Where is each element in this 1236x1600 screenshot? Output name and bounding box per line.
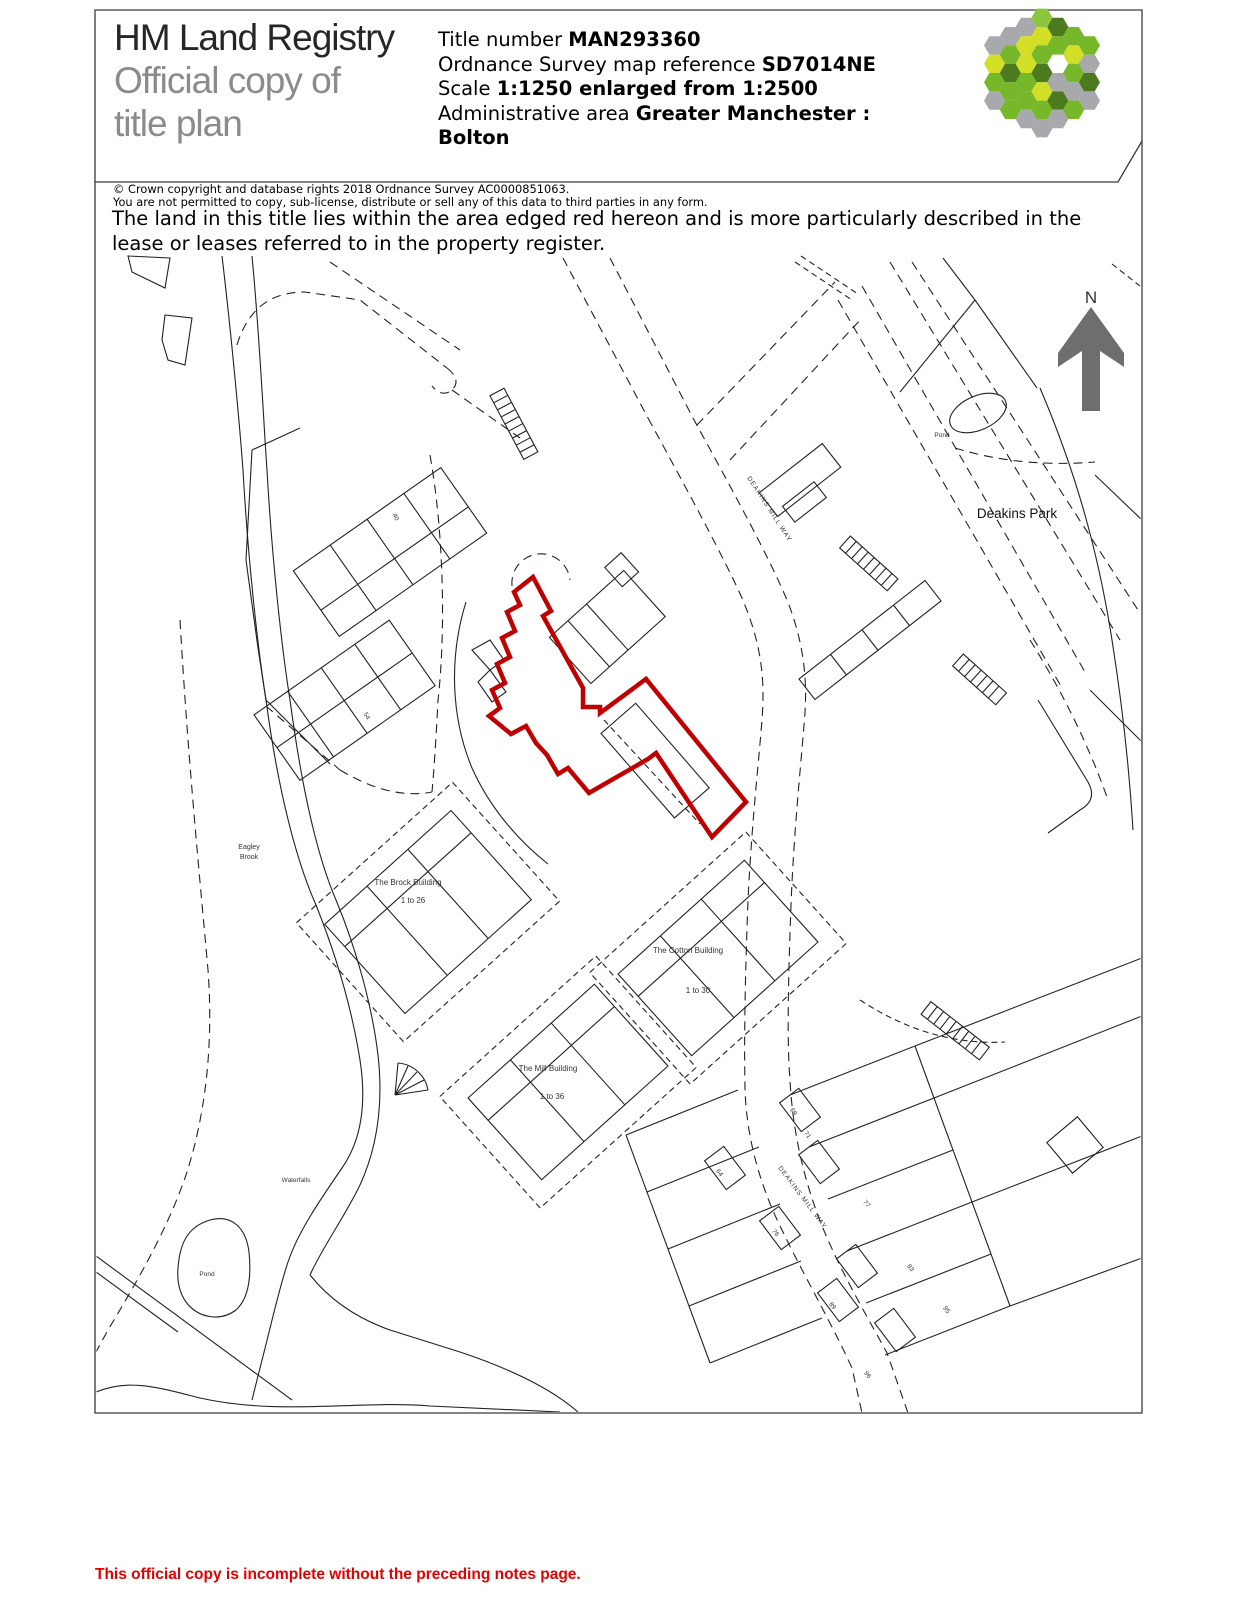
admin-area-row2: Bolton xyxy=(438,126,876,151)
os-reference-row: Ordnance Survey map reference SD7014NE xyxy=(438,53,876,78)
hm-land-registry-logo-icon xyxy=(984,9,1100,138)
scale-row: Scale 1:1250 enlarged from 1:2500 xyxy=(438,77,876,102)
eagley-brook-label-2: Brook xyxy=(240,854,259,861)
title-number-value: MAN293360 xyxy=(568,28,700,51)
logo-title: HM Land Registry xyxy=(114,16,394,59)
admin-area-value2: Bolton xyxy=(438,126,510,149)
brock-building-units: 1 to 26 xyxy=(401,896,426,905)
terrace-40 xyxy=(293,468,486,637)
top-roads xyxy=(237,256,1140,460)
logo-subtitle-line2: title plan xyxy=(114,102,394,145)
spiral-steps xyxy=(395,1063,428,1095)
road-name-label-bottom: DEAKINS MILL WAY xyxy=(776,1165,828,1230)
mill-building-name: The Mill Building xyxy=(519,1064,578,1073)
plot-number: 96 xyxy=(862,1370,872,1380)
pond-top-outline xyxy=(944,385,1013,440)
mill-building xyxy=(440,956,696,1208)
scale-value: 1:1250 enlarged from 1:2500 xyxy=(497,77,818,100)
plot-number: 77 xyxy=(861,1199,871,1209)
brook-lines xyxy=(96,256,578,1412)
brock-building xyxy=(296,782,559,1041)
os-reference-label: Ordnance Survey map reference xyxy=(438,53,762,76)
plot-number: 89 xyxy=(827,1301,837,1311)
road-side-terrace xyxy=(759,444,941,700)
terrace-enclosure xyxy=(246,428,443,794)
north-arrow-icon: N xyxy=(1058,288,1124,411)
title-details: Title number MAN293360 Ordnance Survey m… xyxy=(438,28,876,151)
eagley-brook-label-1: Eagley xyxy=(238,844,260,851)
incomplete-copy-warning: This official copy is incomplete without… xyxy=(95,1566,581,1584)
cotton-building-name: The Cotton Building xyxy=(653,946,723,955)
brock-building-name: The Brock Building xyxy=(374,878,441,887)
plot-number: 71 xyxy=(802,1130,812,1140)
admin-area-row: Administrative area Greater Manchester : xyxy=(438,102,876,127)
scale-label: Scale xyxy=(438,77,497,100)
pond-bottom-outline xyxy=(178,1219,250,1317)
deakins-park-label: Deakins Park xyxy=(977,506,1058,521)
lease-statement: The land in this title lies within the a… xyxy=(112,206,1124,256)
north-label: N xyxy=(1085,288,1097,307)
admin-area-value: Greater Manchester : xyxy=(636,102,870,125)
map-labels: Deakins Park Pond Pond Eagley Brook Wate… xyxy=(199,432,1057,1380)
mill-building-units: 1 to 36 xyxy=(540,1092,565,1101)
logo-subtitle-line1: Official copy of xyxy=(114,59,394,102)
title-number-label: Title number xyxy=(438,28,568,51)
pond-top-label: Pond xyxy=(934,432,950,439)
cotton-building-units: 1 to 30 xyxy=(686,986,711,995)
pond-bottom-label: Pond xyxy=(199,1271,215,1278)
deakins-mill-way-road xyxy=(648,418,908,1413)
os-reference-value: SD7014NE xyxy=(762,53,876,76)
admin-area-label: Administrative area xyxy=(438,102,636,125)
waterfalls-label: Waterfalls xyxy=(282,1177,311,1184)
housing-plots xyxy=(626,958,1142,1363)
plot-number: 83 xyxy=(905,1263,915,1273)
title-plan-page: N Deakins Park Pond Pond Eagley Brook Wa… xyxy=(0,0,1236,1600)
plot-number: 95 xyxy=(941,1305,951,1315)
title-plan-map: N Deakins Park Pond Pond Eagley Brook Wa… xyxy=(96,256,1142,1413)
map-parcels-topleft xyxy=(128,256,192,365)
plot-number: 54 xyxy=(361,711,371,721)
red-edged-property-boundary xyxy=(489,577,746,837)
cotton-building xyxy=(590,832,846,1084)
terrace-54 xyxy=(254,620,435,780)
plot-number: 40 xyxy=(390,512,400,522)
title-number-row: Title number MAN293360 xyxy=(438,28,876,53)
hm-land-registry-wordmark: HM Land Registry Official copy of title … xyxy=(114,16,394,145)
plot-number: 64 xyxy=(714,1168,724,1178)
